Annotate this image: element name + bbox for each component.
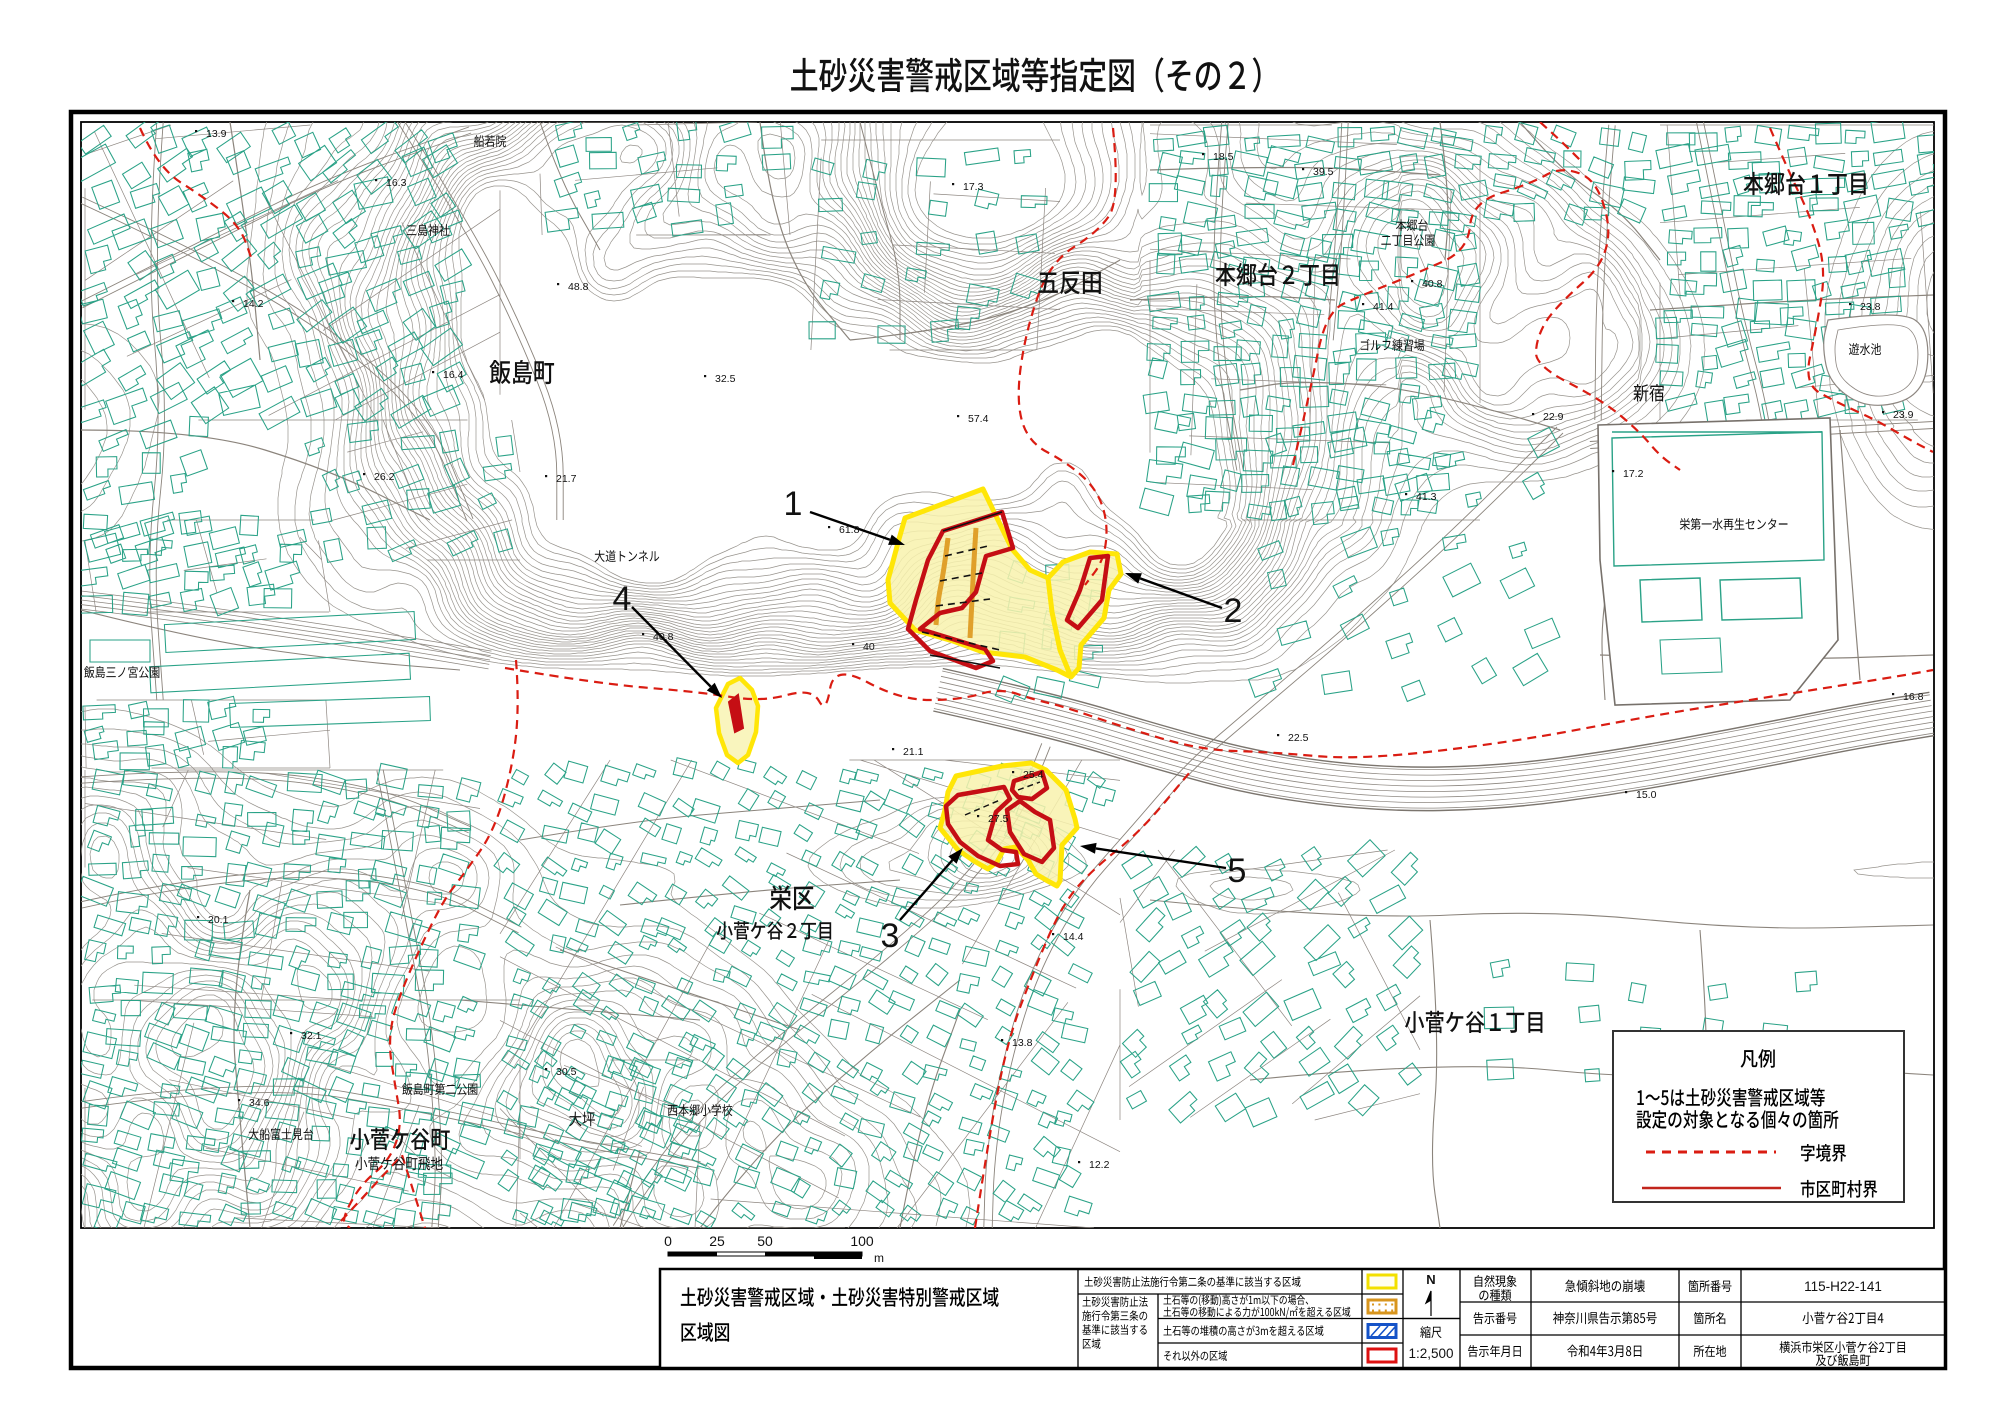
svg-text:17.2: 17.2 <box>1623 468 1644 480</box>
svg-text:18.5: 18.5 <box>1213 151 1234 163</box>
svg-text:41.3: 41.3 <box>1416 491 1437 503</box>
svg-text:40.8: 40.8 <box>653 631 674 643</box>
svg-text:39.5: 39.5 <box>1313 166 1334 178</box>
svg-text:40.8: 40.8 <box>1422 278 1443 290</box>
svg-text:17.3: 17.3 <box>963 181 984 193</box>
svg-text:20.1: 20.1 <box>208 914 229 926</box>
svg-text:13.8: 13.8 <box>1012 1037 1033 1049</box>
svg-text:25: 25 <box>709 1233 725 1249</box>
svg-text:1: 1 <box>784 485 803 523</box>
svg-text:34.6: 34.6 <box>249 1097 270 1109</box>
svg-text:40: 40 <box>863 641 875 653</box>
svg-text:26.2: 26.2 <box>374 471 395 483</box>
svg-text:41.4: 41.4 <box>1373 301 1394 313</box>
svg-text:32.1: 32.1 <box>301 1030 322 1042</box>
svg-text:16.8: 16.8 <box>1903 691 1924 703</box>
svg-text:21.7: 21.7 <box>556 473 577 485</box>
svg-text:22.5: 22.5 <box>1288 732 1309 744</box>
svg-text:32.5: 32.5 <box>715 373 736 385</box>
svg-text:30.5: 30.5 <box>556 1066 577 1078</box>
svg-text:0: 0 <box>664 1233 672 1249</box>
svg-text:23.9: 23.9 <box>1893 409 1914 421</box>
svg-text:14.2: 14.2 <box>243 298 264 310</box>
svg-text:5: 5 <box>1228 852 1247 890</box>
svg-text:15.0: 15.0 <box>1636 789 1657 801</box>
svg-text:27.5: 27.5 <box>988 813 1009 825</box>
svg-text:61.8: 61.8 <box>839 524 860 536</box>
svg-text:57.4: 57.4 <box>968 413 989 425</box>
svg-text:14.4: 14.4 <box>1063 931 1084 943</box>
svg-text:16.4: 16.4 <box>443 369 464 381</box>
svg-text:115-H22-141: 115-H22-141 <box>1804 1279 1882 1294</box>
svg-text:22.9: 22.9 <box>1543 411 1564 423</box>
svg-text:12.2: 12.2 <box>1089 1159 1110 1171</box>
svg-text:23.8: 23.8 <box>1860 301 1881 313</box>
svg-text:100: 100 <box>850 1233 874 1249</box>
svg-text:2: 2 <box>1224 592 1243 630</box>
svg-text:1:2,500: 1:2,500 <box>1408 1346 1453 1361</box>
svg-text:48.8: 48.8 <box>568 281 589 293</box>
svg-text:21.1: 21.1 <box>903 746 924 758</box>
svg-text:4: 4 <box>613 580 632 618</box>
svg-text:25.4: 25.4 <box>1023 769 1044 781</box>
svg-text:13.9: 13.9 <box>206 128 227 140</box>
svg-text:16.3: 16.3 <box>386 177 407 189</box>
svg-text:N: N <box>1426 1272 1435 1287</box>
svg-text:3: 3 <box>881 917 900 955</box>
svg-text:m: m <box>874 1251 884 1265</box>
svg-text:50: 50 <box>757 1233 773 1249</box>
